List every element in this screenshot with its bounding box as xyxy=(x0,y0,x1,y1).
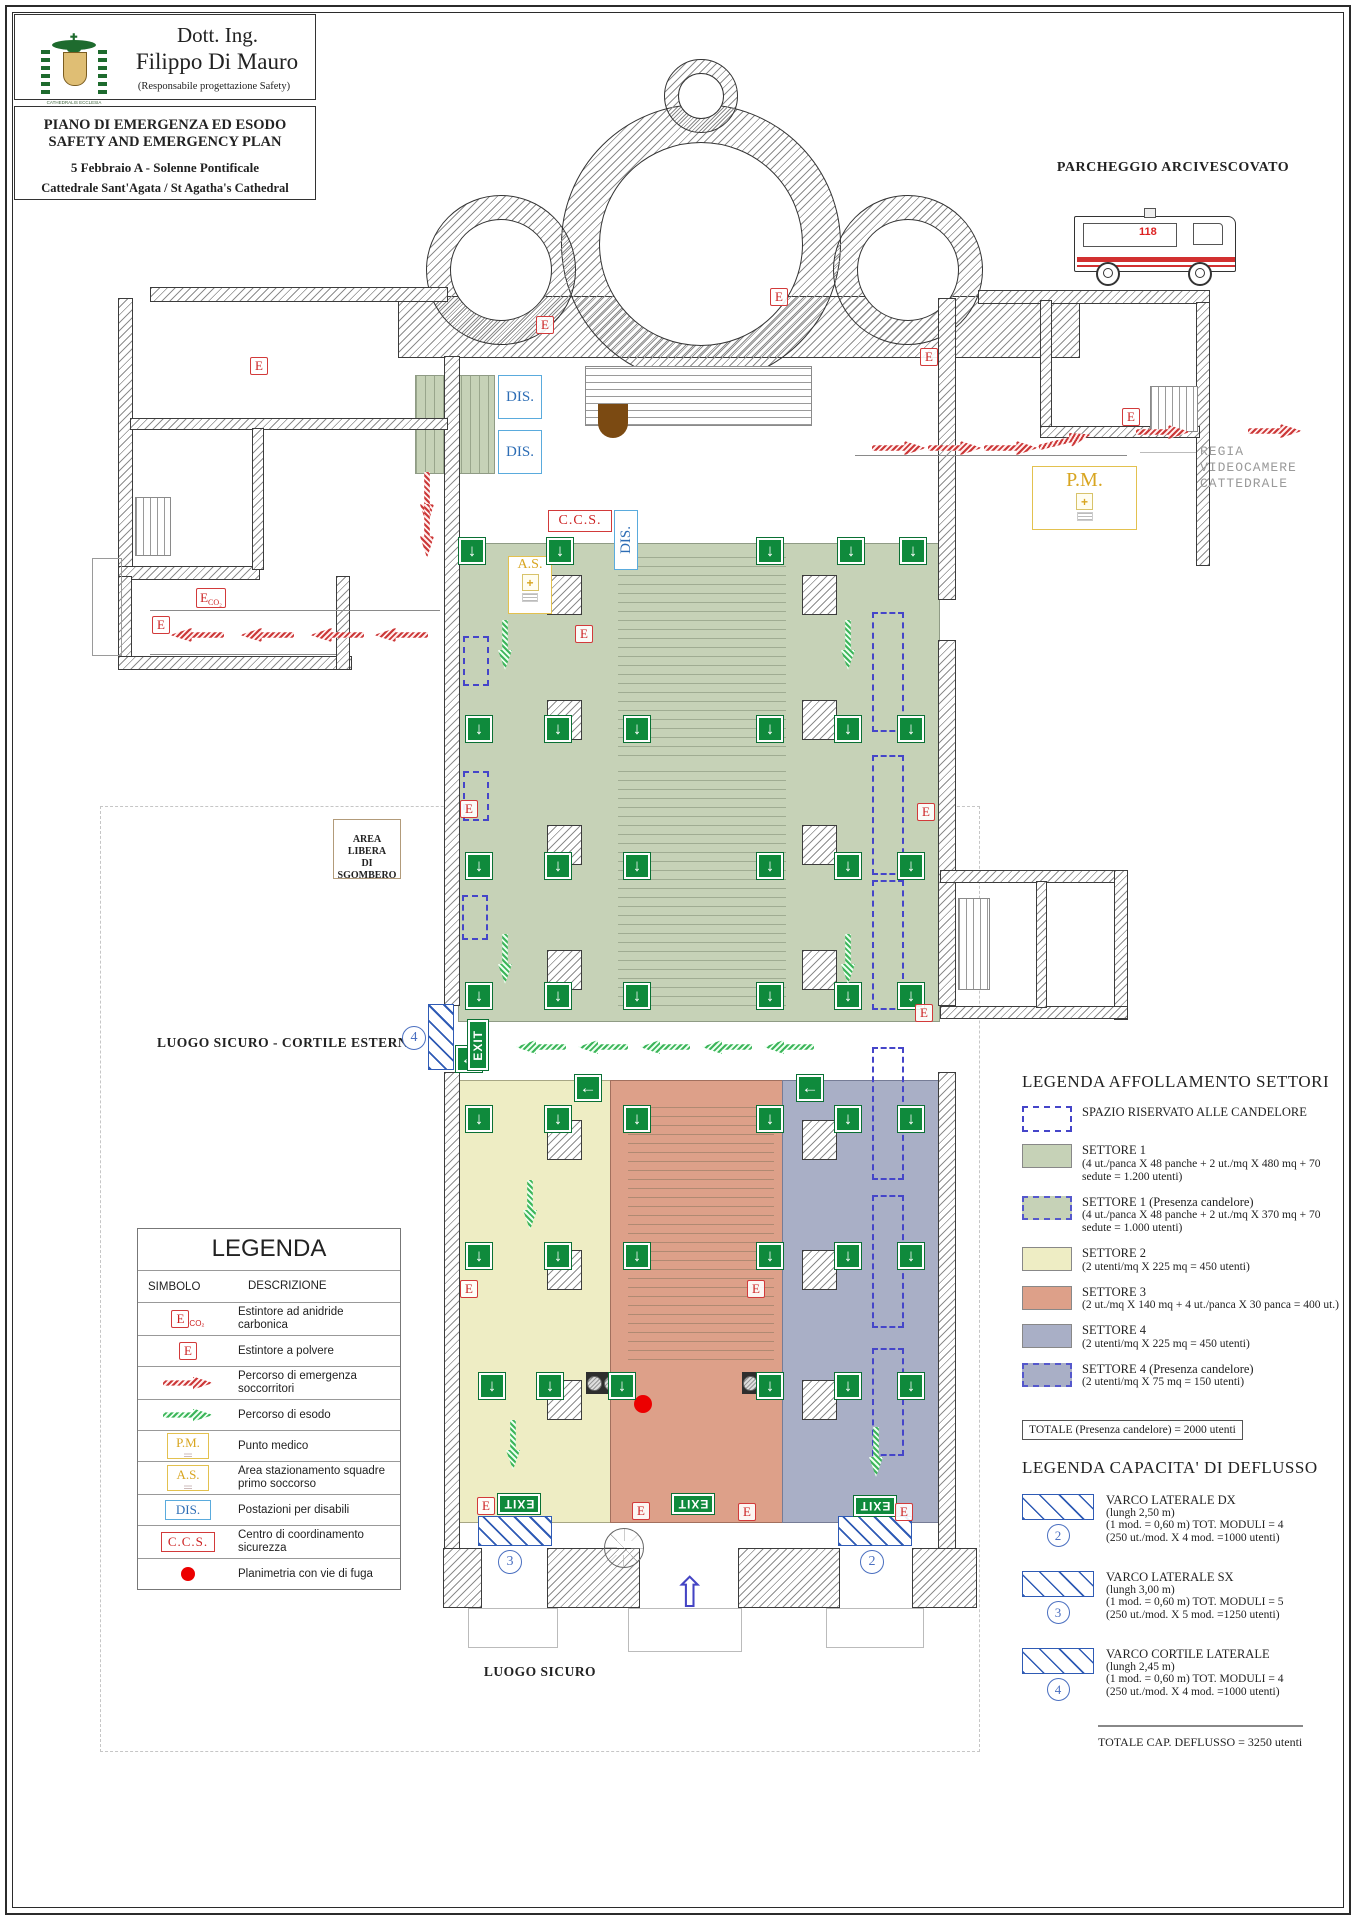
extinguisher-icon: E xyxy=(575,625,593,643)
gate-number-badge: 4 xyxy=(402,1026,426,1050)
escape-route-arrow-icon xyxy=(516,1040,566,1054)
exit-direction-sign: ↓ xyxy=(466,716,492,742)
total-with-candelore: TOTALE (Presenza candelore) = 2000 utent… xyxy=(1022,1420,1243,1440)
gate-number-badge: 2 xyxy=(860,1550,884,1574)
disabled-station-box: DIS. xyxy=(498,375,542,419)
rescuer-route-arrow-icon xyxy=(374,628,428,642)
exit-direction-sign: ↓ xyxy=(900,538,926,564)
extinguisher-icon: E xyxy=(895,1503,913,1521)
sector-legend-entry: SETTORE 1 (4 ut./panca X 48 panche + 2 u… xyxy=(1022,1144,1347,1184)
exit-sign: EXIT xyxy=(672,1494,714,1514)
legend-row: C.C.S. Centro di coordinamento sicurezza xyxy=(138,1525,400,1558)
egress-gate-hatch xyxy=(428,1004,454,1070)
exit-direction-sign: ← xyxy=(575,1075,601,1101)
outflow-entry: 2 VARCO LATERALE DX (lungh 2,50 m) (1 mo… xyxy=(1022,1494,1352,1547)
exit-direction-sign: ↓ xyxy=(466,1106,492,1132)
exit-direction-sign: ← xyxy=(797,1075,823,1101)
rescuer-route-arrow-icon xyxy=(1037,428,1093,455)
disabled-station-box: DIS. xyxy=(498,430,542,474)
exit-direction-sign: ↓ xyxy=(835,716,861,742)
exit-direction-sign: ↓ xyxy=(624,853,650,879)
sector-legend-entry: SETTORE 4 (Presenza candelore) (2 utenti… xyxy=(1022,1363,1347,1390)
extinguisher-icon: E xyxy=(460,800,478,818)
exit-direction-sign: ↓ xyxy=(835,1106,861,1132)
sector-swatch xyxy=(1022,1106,1072,1132)
rescuer-route-arrow-icon xyxy=(310,628,364,642)
sector-swatch xyxy=(1022,1286,1072,1310)
rescuer-route-arrow-icon xyxy=(984,441,1038,455)
gate-number-badge: 3 xyxy=(1047,1601,1070,1624)
escape-route-arrow-icon xyxy=(523,1180,537,1230)
candelora-reserved-space xyxy=(872,612,904,732)
escape-route-arrow-icon xyxy=(764,1040,814,1054)
exit-sign: EXIT xyxy=(468,1020,488,1070)
extinguisher-icon: E xyxy=(632,1502,650,1520)
exit-direction-sign: ↓ xyxy=(838,538,864,564)
candelora-reserved-space xyxy=(463,636,489,686)
extinguisher-icon: E xyxy=(747,1280,765,1298)
outflow-legend: LEGENDA CAPACITA' DI DEFLUSSO 2 VARCO LA… xyxy=(1022,1458,1352,1750)
exit-direction-sign: ↓ xyxy=(835,983,861,1009)
sector-legend-entry: SETTORE 1 (Presenza candelore) (4 ut./pa… xyxy=(1022,1196,1347,1236)
sector-legend: LEGENDA AFFOLLAMENTO SETTORI SPAZIO RISE… xyxy=(1022,1072,1347,1401)
rescuer-route-arrow-icon xyxy=(1136,425,1190,439)
sector-legend-entry: SETTORE 3 (2 ut./mq X 140 mq + 4 ut./pan… xyxy=(1022,1286,1347,1313)
sector-legend-entry: SETTORE 2 (2 utenti/mq X 225 mq = 450 ut… xyxy=(1022,1247,1347,1274)
escape-route-arrow-icon xyxy=(498,620,512,670)
exit-direction-sign: ↓ xyxy=(624,983,650,1009)
exit-direction-sign: ↓ xyxy=(545,1243,571,1269)
exit-direction-sign: ↓ xyxy=(757,716,783,742)
exit-direction-sign: ↓ xyxy=(757,538,783,564)
legend-row: Planimetria con vie di fuga xyxy=(138,1558,400,1589)
legend-col-symbol: SIMBOLO xyxy=(138,1277,248,1296)
sector-swatch xyxy=(1022,1144,1072,1168)
total-outflow: TOTALE CAP. DEFLUSSO = 3250 utenti xyxy=(1098,1735,1352,1750)
exit-direction-sign: ↓ xyxy=(479,1373,505,1399)
exit-sign: EXIT xyxy=(854,1496,896,1516)
exit-direction-sign: ↓ xyxy=(609,1373,635,1399)
exit-direction-sign: ↓ xyxy=(757,983,783,1009)
legend-row: Percorso di emergenza soccorritori xyxy=(138,1366,400,1399)
extinguisher-icon: E xyxy=(920,348,938,366)
exit-direction-sign: ↓ xyxy=(547,538,573,564)
rescuer-route-arrow-icon xyxy=(1248,424,1302,438)
escape-route-arrow-icon xyxy=(498,934,512,984)
exit-direction-sign: ↓ xyxy=(545,1106,571,1132)
escape-route-arrow-icon xyxy=(841,934,855,984)
gate-number-badge: 3 xyxy=(498,1550,522,1574)
rescuer-route-arrow-icon xyxy=(240,628,294,642)
escape-route-arrow-icon xyxy=(506,1420,520,1470)
exit-direction-sign: ↓ xyxy=(545,716,571,742)
exit-direction-sign: ↓ xyxy=(757,1243,783,1269)
extinguisher-icon: E xyxy=(770,288,788,306)
outflow-entry: 3 VARCO LATERALE SX (lungh 3,00 m) (1 mo… xyxy=(1022,1571,1352,1624)
exit-direction-sign: ↓ xyxy=(537,1373,563,1399)
extinguisher-icon: E xyxy=(738,1503,756,1521)
exit-direction-sign: ↓ xyxy=(545,983,571,1009)
escape-route-arrow-icon xyxy=(841,620,855,670)
divider xyxy=(1098,1725,1303,1727)
sector-legend-entry: SPAZIO RISERVATO ALLE CANDELORE xyxy=(1022,1106,1347,1132)
gate-number-badge: 2 xyxy=(1047,1524,1070,1547)
exit-direction-sign: ↓ xyxy=(898,1106,924,1132)
outflow-entry: 4 VARCO CORTILE LATERALE (lungh 2,45 m) … xyxy=(1022,1648,1352,1701)
extinguisher-icon: E xyxy=(1122,408,1140,426)
exit-direction-sign: ↓ xyxy=(466,983,492,1009)
legend-row: ECO₂ Estintore ad anidride carbonica xyxy=(138,1302,400,1335)
exit-direction-sign: ↓ xyxy=(466,853,492,879)
extinguisher-icon: E xyxy=(152,616,170,634)
exit-direction-sign: ↓ xyxy=(624,1243,650,1269)
extinguisher-icon: E xyxy=(917,803,935,821)
exit-direction-sign: ↓ xyxy=(835,853,861,879)
gate-number-badge: 4 xyxy=(1047,1678,1070,1701)
exit-direction-sign: ↓ xyxy=(898,853,924,879)
rescuer-route-arrow-icon xyxy=(928,441,982,455)
sector-swatch xyxy=(1022,1363,1072,1387)
exit-direction-sign: ↓ xyxy=(835,1373,861,1399)
extinguisher-icon: E xyxy=(915,1004,933,1022)
exit-direction-sign: ↓ xyxy=(545,853,571,879)
exit-direction-sign: ↓ xyxy=(898,1243,924,1269)
escape-route-arrow-icon xyxy=(578,1040,628,1054)
extinguisher-icon: E xyxy=(250,357,268,375)
sector-legend-title: LEGENDA AFFOLLAMENTO SETTORI xyxy=(1022,1072,1347,1092)
sector-swatch xyxy=(1022,1247,1072,1271)
exit-direction-sign: ↓ xyxy=(459,538,485,564)
emergency-plan-sheet: ✚ CATHEDRALIS ECCLESIA CATANENSIS Dott. … xyxy=(0,0,1356,1920)
exit-direction-sign: ↓ xyxy=(898,716,924,742)
gate-hatch-swatch xyxy=(1022,1494,1094,1520)
escape-route-arrow-icon xyxy=(702,1040,752,1054)
exit-direction-sign: ↓ xyxy=(624,1106,650,1132)
legend-row: P.M. Punto medico xyxy=(138,1430,400,1461)
outflow-legend-title: LEGENDA CAPACITA' DI DEFLUSSO xyxy=(1022,1458,1352,1478)
gate-hatch-swatch xyxy=(1022,1571,1094,1597)
exit-sign: EXIT xyxy=(498,1494,540,1514)
symbol-legend: LEGENDA SIMBOLO DESCRIZIONE ECO₂ Estinto… xyxy=(137,1228,401,1590)
candelora-reserved-space xyxy=(462,895,488,940)
legend-title: LEGENDA xyxy=(138,1229,400,1270)
exit-direction-sign: ↓ xyxy=(757,853,783,879)
exit-direction-sign: ↓ xyxy=(624,716,650,742)
gate-hatch-swatch xyxy=(1022,1648,1094,1674)
legend-row: DIS. Postazioni per disabili xyxy=(138,1494,400,1525)
sector-swatch xyxy=(1022,1324,1072,1348)
exit-direction-sign: ↓ xyxy=(835,1243,861,1269)
extinguisher-icon: E xyxy=(536,316,554,334)
sector-swatch xyxy=(1022,1196,1072,1220)
exit-direction-sign: ↓ xyxy=(757,1373,783,1399)
rescuer-route-arrow-icon xyxy=(170,628,224,642)
rescuer-route-arrow-icon xyxy=(420,504,434,558)
legend-col-desc: DESCRIZIONE xyxy=(248,1277,400,1296)
co2-extinguisher-icon: ECO₂ xyxy=(196,588,226,608)
exit-direction-sign: ↓ xyxy=(898,1373,924,1399)
sector-legend-entry: SETTORE 4 (2 utenti/mq X 225 mq = 450 ut… xyxy=(1022,1324,1347,1351)
legend-row: Percorso di esodo xyxy=(138,1399,400,1430)
extinguisher-icon: E xyxy=(460,1280,478,1298)
egress-gate-hatch xyxy=(478,1516,552,1546)
legend-row: A.S. Area stazionamento squadre primo so… xyxy=(138,1461,400,1494)
exit-direction-sign: ↓ xyxy=(466,1243,492,1269)
escape-route-arrow-icon xyxy=(640,1040,690,1054)
legend-row: E Estintore a polvere xyxy=(138,1335,400,1366)
rescuer-route-arrow-icon xyxy=(872,441,926,455)
exit-direction-sign: ↓ xyxy=(757,1106,783,1132)
extinguisher-icon: E xyxy=(477,1497,495,1515)
